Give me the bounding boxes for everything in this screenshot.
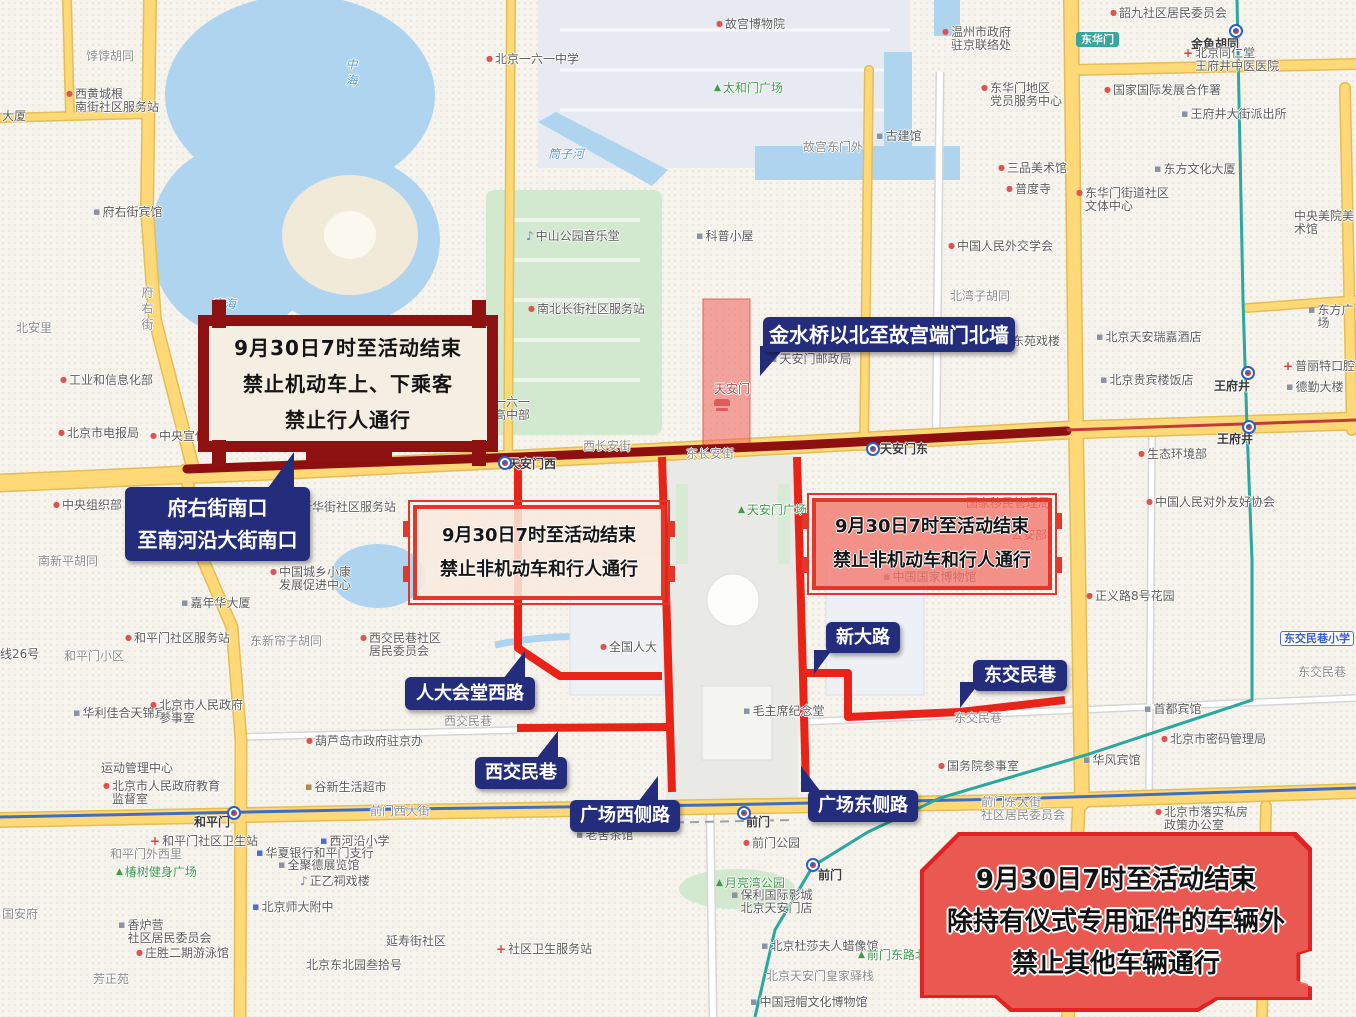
map-label: 和平门外西里	[110, 848, 182, 861]
ceremony-line: 9月30日7时至活动结束	[920, 865, 1312, 895]
map-label: 天安门西	[508, 458, 556, 471]
school-icon: ▪	[252, 901, 259, 913]
map-label: ▪谷新生活超市	[305, 781, 386, 794]
metro-station-icon	[1242, 420, 1256, 434]
dot-icon: ●	[1146, 496, 1153, 508]
map-label: 和平门	[194, 816, 230, 829]
dot-icon: ●	[125, 632, 132, 644]
music-icon: ♪	[526, 230, 534, 242]
dot-icon: ●	[306, 735, 313, 747]
metro-station-icon	[227, 806, 241, 820]
dot-icon: ●	[58, 427, 65, 439]
banner-line: 禁止机动车上、下乘客	[209, 366, 487, 402]
callout-xindalu: 新大路	[826, 622, 900, 653]
frame-ornament	[1055, 557, 1062, 573]
map-label: ●韶九社区居民委员会	[1110, 7, 1227, 20]
map-label: 西交民巷	[444, 715, 492, 728]
bldg-icon: ▪	[761, 940, 768, 952]
map-label: ▪嘉年华大厦	[181, 597, 250, 610]
map-label: ●和平门社区服务站	[125, 632, 230, 645]
bldg-icon: ▪	[696, 230, 703, 242]
map-label: ●中国人民对外友好协会	[1146, 496, 1275, 509]
map-label: ●三品美术馆	[998, 162, 1067, 175]
shop-icon: ▪	[305, 781, 312, 793]
bldg-icon: ▪	[743, 705, 750, 717]
map-label: ▪东方广场	[1308, 304, 1356, 330]
bldg-icon: ▪	[750, 996, 757, 1008]
map-label: ●北京市落实私房 政策办公室	[1155, 806, 1248, 832]
dot-icon: ●	[1138, 448, 1145, 460]
callout-square-west-rd: 广场西侧路	[570, 800, 680, 832]
bldg-icon: ▪	[1308, 304, 1315, 316]
dot-icon: ●	[1086, 590, 1093, 602]
map-label: 北安里	[16, 322, 52, 335]
map-label: ♪中山公园音乐堂	[526, 230, 620, 243]
dot-icon: ●	[103, 780, 110, 792]
tree-icon: ▲	[858, 949, 865, 961]
dot-icon: ●	[743, 837, 750, 849]
map-label: 和平门小区	[64, 650, 124, 663]
map-label: 东华门	[1076, 32, 1119, 47]
map-label: 故宫东门外	[803, 141, 863, 154]
frame-ornament	[403, 521, 410, 537]
bldg-icon: ▪	[1096, 331, 1103, 343]
map-label: 南新平胡同	[38, 555, 98, 568]
notice-line: 禁止非机动车和行人通行	[816, 544, 1048, 578]
map-label: ♪正乙祠戏楼	[300, 875, 370, 888]
bldg-icon: ▪	[1100, 374, 1107, 386]
map-label: ●北京市电报局	[58, 427, 139, 440]
bldg-icon: ▪	[731, 889, 738, 901]
map-label: ●西交民巷社区 居民委员会	[360, 632, 441, 658]
banner-line: 9月30日7时至活动结束	[209, 330, 487, 366]
frame-ornament	[403, 566, 410, 582]
callout-fuyoujie: 府右街南口 至南河沿大街南口	[125, 487, 310, 561]
map-label: 中海	[344, 58, 357, 90]
music-icon: ♪	[300, 875, 308, 887]
no-pedestrian-box-east: 9月30日7时至活动结束 禁止非机动车和行人通行	[812, 498, 1052, 590]
map-label: 东长安街	[686, 448, 734, 461]
map-viewport[interactable]: 饽饽胡同●西黄城根 南街社区服务站大厦▪府右街宾馆府右街北安里●工业和信息化部●…	[0, 0, 1356, 1017]
cross-icon: +	[1283, 360, 1293, 372]
map-label: ▪古建馆	[876, 130, 921, 143]
map-label: ●北京一六一中学	[486, 53, 579, 66]
map-label: ▲太和门广场	[714, 82, 783, 95]
callout-text: 金水桥以北至故宫端门北墙	[763, 319, 1015, 351]
map-label: ●国务院参事室	[938, 760, 1019, 773]
callout-text: 广场西侧路	[570, 801, 680, 831]
dot-icon: ●	[1110, 7, 1117, 19]
bldg-icon: ▪	[93, 206, 100, 218]
callout-tail	[536, 731, 558, 759]
ceremony-vehicle-box: 9月30日7时至活动结束 除持有仪式专用证件的车辆外 禁止其他车辆通行	[920, 832, 1312, 1012]
map-label: 北京天安门皇家驿栈	[766, 970, 874, 983]
map-label: ▪北京贵宾楼饭店	[1100, 374, 1193, 387]
cross-icon: +	[150, 835, 160, 847]
metro-station-icon	[737, 806, 751, 820]
map-label: 饽饽胡同	[86, 50, 134, 63]
map-label: ▲椿树健身广场	[116, 866, 197, 879]
map-label: ●国家国际发展合作署	[1104, 84, 1221, 97]
cross-icon: +	[1183, 47, 1193, 59]
map-label: ●南北长街社区服务站	[528, 303, 645, 316]
tree-icon: ▲	[738, 504, 745, 516]
map-label: ▪中国冠帽文化博物馆	[750, 996, 867, 1009]
map-label: ●中国人民外交学会	[948, 240, 1053, 253]
closure-banner: 9月30日7时至活动结束 禁止机动车上、下乘客 禁止行人通行	[198, 315, 498, 452]
map-label: 东新帘子胡同	[250, 635, 322, 648]
map-label: 天安门	[714, 383, 750, 396]
dot-icon: ●	[360, 632, 367, 644]
bldg-icon: ▪	[1181, 108, 1188, 120]
map-label: ▪保利国际影城 北京天安门店	[731, 889, 812, 915]
map-label: ▪科普小屋	[696, 230, 753, 243]
map-label: 府右街	[140, 286, 153, 334]
map-label: ▪首都宾馆	[1144, 703, 1201, 716]
bldg-icon: ▪	[876, 130, 883, 142]
map-label: ●葫芦岛市政府驻京办	[306, 735, 423, 748]
map-label: 前门西大街	[370, 805, 430, 818]
tree-icon: ▲	[714, 82, 721, 94]
map-label: ●正义路8号花园	[1086, 590, 1175, 603]
map-label: ●工业和信息化部	[60, 374, 153, 387]
callout-xijiaominxiang: 西交民巷	[475, 757, 567, 789]
dot-icon: ●	[53, 499, 60, 511]
frame-ornament	[668, 521, 675, 537]
bldg-icon: ▪	[118, 919, 125, 931]
dot-icon: ●	[948, 240, 955, 252]
dot-icon: ●	[528, 303, 535, 315]
map-label: 东交民巷	[1298, 666, 1346, 679]
map-label: 王府井	[1214, 380, 1250, 393]
callout-text: 广场东侧路	[808, 791, 918, 821]
callout-tail	[801, 766, 821, 792]
map-label: 筒子河	[548, 148, 584, 161]
dot-icon: ●	[1006, 183, 1013, 195]
frame-ornament	[802, 557, 809, 573]
dot-icon: ●	[1104, 84, 1111, 96]
map-label: ▪华风宾馆	[1083, 754, 1140, 767]
bldg-icon: ▪	[73, 707, 80, 719]
frame-ornament	[802, 513, 809, 529]
banner-ornament	[212, 440, 226, 466]
map-label: 前门	[818, 869, 842, 882]
tree-icon: ▲	[716, 877, 723, 889]
dot-icon: ●	[60, 374, 67, 386]
map-label: ▪德勤大楼	[1286, 381, 1343, 394]
map-label: 运动管理中心	[101, 762, 173, 775]
callout-text: 西交民巷	[475, 758, 567, 788]
callout-tail	[814, 650, 832, 674]
dot-icon: ●	[150, 699, 157, 711]
map-label: 线26号	[0, 648, 39, 661]
callout-square-east-rd: 广场东侧路	[808, 790, 918, 822]
ceremony-line: 禁止其他车辆通行	[920, 949, 1312, 979]
bldg-icon: ▪	[1154, 163, 1161, 175]
map-label: ●北京市人民政府教育 监督室	[103, 780, 220, 806]
frame-ornament	[1055, 513, 1062, 529]
restricted-zone-rect	[703, 299, 750, 447]
dot-icon: ●	[270, 566, 277, 578]
map-label: ●普度寺	[1006, 183, 1051, 196]
map-label: ●西黄城根 南街社区服务站	[66, 88, 159, 114]
callout-text: 新大路	[826, 623, 900, 653]
metro-station-icon	[1241, 366, 1255, 380]
dot-icon: ●	[981, 82, 988, 94]
metro-station-icon	[498, 456, 512, 470]
callout-tail	[268, 452, 294, 488]
banner-ornament	[472, 440, 486, 466]
map-label: 北京东北园叁拾号	[306, 959, 402, 972]
frame-ornament	[668, 566, 675, 582]
map-label: 芳正苑	[93, 973, 129, 986]
map-label: 国安府	[2, 908, 38, 921]
map-label: ●生态环境部	[1138, 448, 1207, 461]
map-label: 东交民巷	[954, 712, 1002, 725]
bldg-icon: ▪	[181, 597, 188, 609]
map-label: 西长安街	[583, 440, 631, 453]
callout-tail	[638, 776, 658, 802]
map-label: 延寿街社区	[386, 935, 446, 948]
map-label: 东交民巷小学	[1280, 631, 1354, 646]
banner-ornament	[472, 300, 486, 328]
dot-icon: ●	[938, 760, 945, 772]
bldg-icon: ▪	[1083, 754, 1090, 766]
callout-rendahuitang-west-rd: 人大会堂西路	[405, 677, 535, 710]
metro-station-icon	[806, 858, 820, 872]
bank-icon: ▪	[256, 847, 263, 859]
map-label: +社区卫生服务站	[496, 943, 592, 956]
tree-icon: ▲	[116, 866, 123, 878]
dot-icon: ●	[942, 26, 949, 38]
map-label: ●故宫博物院	[716, 18, 785, 31]
map-label: ●东华门地区 党员服务中心	[981, 82, 1062, 108]
callout-text: 府右街南口	[125, 492, 310, 524]
dot-icon: ●	[66, 88, 73, 100]
callout-text: 东交民巷	[973, 661, 1067, 691]
map-label: ●全国人大	[600, 641, 657, 654]
dot-icon: ●	[1161, 733, 1168, 745]
notice-line: 9月30日7时至活动结束	[417, 519, 661, 553]
dot-icon: ●	[150, 430, 157, 442]
bldg-icon: ▪	[278, 859, 285, 871]
metro-station-icon	[1229, 24, 1243, 38]
map-label: ▪全聚德展览馆	[278, 859, 359, 872]
map-label: 中央美院美术馆	[1294, 210, 1356, 236]
map-label: 大厦	[2, 110, 26, 123]
dot-icon: ●	[1155, 806, 1162, 818]
map-label: ▲天安门广场	[738, 504, 807, 517]
map-label: ▪王府井大街派出所	[1181, 108, 1286, 121]
map-label: ●北京市人民政府 参事室	[150, 699, 243, 725]
dot-icon: ●	[716, 18, 723, 30]
bldg-icon: ▪	[1144, 703, 1151, 715]
map-label: 北湾子胡同	[950, 290, 1010, 303]
map-label: ●北京市密码管理局	[1161, 733, 1266, 746]
map-label: ▪府右街宾馆	[93, 206, 162, 219]
map-label: 前门东大街 社区居民委员会	[981, 796, 1065, 822]
no-pedestrian-box-west: 9月30日7时至活动结束 禁止非机动车和行人通行	[413, 505, 665, 600]
map-label: ▪东方文化大厦	[1154, 163, 1235, 176]
map-label: ▪北京师大附中	[252, 901, 333, 914]
dot-icon: ●	[998, 162, 1005, 174]
callout-jinshuiqiao: 金水桥以北至故宫端门北墙	[763, 317, 1015, 352]
callout-text: 至南河沿大街南口	[125, 524, 310, 556]
notice-line: 禁止非机动车和行人通行	[417, 553, 661, 587]
metro-station-icon	[866, 442, 880, 456]
banner-line: 禁止行人通行	[209, 402, 487, 438]
callout-tail	[503, 651, 525, 679]
map-label: ●中国城乡小康 发展促进中心	[270, 566, 351, 592]
map-label: ●前门公园	[743, 837, 800, 850]
map-label: ●中央组织部	[53, 499, 122, 512]
map-label: +北京同仁堂 王府井中医医院	[1183, 47, 1279, 73]
map-label: 王府井	[1217, 433, 1253, 446]
map-label: ●东华门街道社区 文体中心	[1076, 187, 1169, 213]
map-label: ▪北京天安瑞嘉酒店	[1096, 331, 1201, 344]
map-label: +普丽特口腔	[1283, 360, 1355, 373]
bldg-icon: ▪	[1286, 381, 1293, 393]
callout-text: 人大会堂西路	[405, 679, 535, 709]
map-label: 天安门东	[880, 443, 928, 456]
cross-icon: +	[496, 943, 506, 955]
tiananmen-gate-icon	[714, 399, 730, 406]
ceremony-line: 除持有仪式专用证件的车辆外	[920, 907, 1312, 937]
map-label: ●庄胜二期游泳馆	[136, 947, 229, 960]
callout-dongjiaominxiang: 东交民巷	[973, 660, 1067, 691]
banner-ornament	[212, 300, 226, 328]
notice-line: 9月30日7时至活动结束	[816, 510, 1048, 544]
dot-icon: ●	[1076, 187, 1083, 199]
banner-ornament	[306, 448, 392, 462]
dot-icon: ●	[600, 641, 607, 653]
map-label: ●温州市政府 驻京联络处	[942, 26, 1011, 52]
dot-icon: ●	[486, 53, 493, 65]
map-label: ▪毛主席纪念堂	[743, 705, 824, 718]
dot-icon: ●	[136, 947, 143, 959]
map-label: 前门	[746, 816, 770, 829]
map-label: ▪香炉营 社区居民委员会	[118, 919, 211, 945]
